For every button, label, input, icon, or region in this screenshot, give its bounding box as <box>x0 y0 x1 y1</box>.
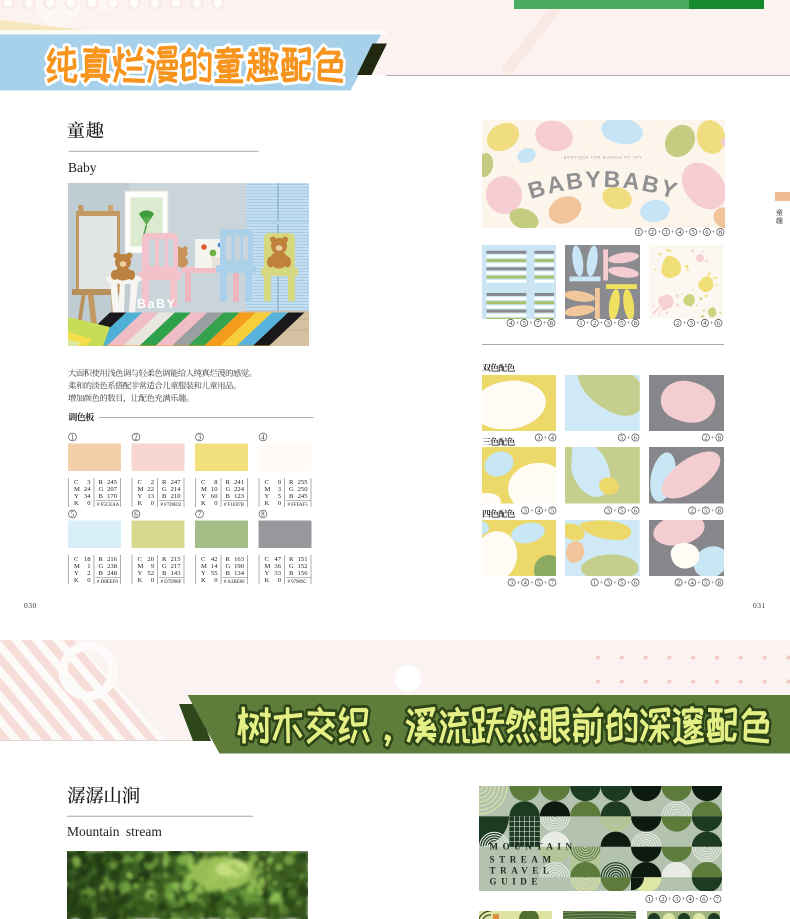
svg-text:6: 6 <box>134 511 138 518</box>
svg-text:R: R <box>226 556 231 563</box>
svg-text:+: + <box>685 229 689 236</box>
svg-text:247: 247 <box>171 479 182 486</box>
svg-text:Y: Y <box>265 570 270 577</box>
svg-text:Y: Y <box>138 570 143 577</box>
svg-text:2: 2 <box>661 896 664 903</box>
svg-text:R: R <box>99 556 104 563</box>
svg-text:G: G <box>226 486 231 493</box>
svg-text:# D7D98F: # D7D98F <box>161 580 182 585</box>
svg-text:52: 52 <box>147 570 154 577</box>
svg-text:+: + <box>627 435 631 442</box>
svg-text:B: B <box>226 570 231 577</box>
svg-text:248: 248 <box>107 570 118 577</box>
svg-text:8: 8 <box>634 320 637 327</box>
svg-text:# D8EEF8: # D8EEF8 <box>97 580 118 585</box>
svg-text:G: G <box>99 563 104 570</box>
svg-text:8: 8 <box>718 435 721 442</box>
svg-text:B: B <box>289 493 294 500</box>
svg-text:0: 0 <box>278 577 282 584</box>
svg-text:+: + <box>657 229 661 236</box>
svg-text:M: M <box>74 486 80 493</box>
svg-text:3: 3 <box>690 320 693 327</box>
svg-text:+: + <box>697 580 701 587</box>
svg-text:33: 33 <box>274 570 281 577</box>
svg-text:K: K <box>138 577 143 584</box>
svg-text:+: + <box>711 435 715 442</box>
svg-text:G: G <box>289 486 294 493</box>
svg-text:C: C <box>138 479 143 486</box>
svg-text:3: 3 <box>675 896 678 903</box>
svg-text:238: 238 <box>107 563 118 570</box>
svg-text:M: M <box>138 563 144 570</box>
svg-text:+: + <box>695 896 699 903</box>
svg-text:+: + <box>711 580 715 587</box>
svg-text:+: + <box>683 320 687 327</box>
svg-text:123: 123 <box>234 493 245 500</box>
svg-text:C: C <box>74 479 79 486</box>
svg-text:+: + <box>529 320 533 327</box>
svg-text:MOUNTAIN: MOUNTAIN <box>490 842 577 852</box>
svg-text:245: 245 <box>107 479 118 486</box>
svg-text:C: C <box>138 556 143 563</box>
svg-text:2: 2 <box>87 570 90 577</box>
svg-text:+: + <box>671 229 675 236</box>
svg-text:9: 9 <box>151 563 155 570</box>
svg-text:2: 2 <box>676 320 679 327</box>
svg-text:6: 6 <box>705 229 708 236</box>
svg-text:+: + <box>613 507 617 514</box>
svg-text:+: + <box>627 580 631 587</box>
svg-text:C: C <box>74 556 79 563</box>
svg-text:5: 5 <box>71 511 75 518</box>
svg-text:G: G <box>162 486 167 493</box>
svg-text:K: K <box>201 500 206 507</box>
svg-text:# F5CEAA: # F5CEAA <box>97 503 120 508</box>
svg-text:+: + <box>627 320 631 327</box>
svg-text:Y: Y <box>138 493 143 500</box>
svg-text:+: + <box>644 229 648 236</box>
svg-text:5: 5 <box>278 493 282 500</box>
svg-text:+: + <box>654 896 658 903</box>
svg-text:5: 5 <box>620 320 623 327</box>
svg-text:+: + <box>697 507 701 514</box>
svg-text:6: 6 <box>634 435 637 442</box>
svg-text:C: C <box>201 556 206 563</box>
svg-text:3: 3 <box>87 479 91 486</box>
svg-text:24: 24 <box>84 486 91 493</box>
svg-text:152: 152 <box>298 563 308 570</box>
svg-text:6: 6 <box>717 320 720 327</box>
svg-text:5: 5 <box>704 507 707 514</box>
svg-text:215: 215 <box>171 556 182 563</box>
svg-text:+: + <box>613 580 617 587</box>
svg-text:+: + <box>543 435 547 442</box>
svg-text:+: + <box>711 507 715 514</box>
svg-text:5: 5 <box>692 229 695 236</box>
svg-text:2: 2 <box>677 580 680 587</box>
svg-text:5: 5 <box>620 435 623 442</box>
svg-text:3: 3 <box>607 580 610 587</box>
svg-text:3: 3 <box>278 486 282 493</box>
svg-text:255: 255 <box>298 479 309 486</box>
svg-text:3: 3 <box>509 580 512 587</box>
svg-text:# F1E07B: # F1E07B <box>224 503 245 508</box>
svg-text:2: 2 <box>593 320 596 327</box>
svg-text:0: 0 <box>151 500 155 507</box>
svg-text:+: + <box>543 580 547 587</box>
svg-text:1: 1 <box>593 580 596 587</box>
svg-text:5: 5 <box>620 580 623 587</box>
svg-text:G: G <box>99 486 104 493</box>
svg-text:+: + <box>696 320 700 327</box>
svg-text:M: M <box>201 486 207 493</box>
svg-text:C: C <box>265 556 270 563</box>
svg-text:B: B <box>226 493 231 500</box>
svg-text:C: C <box>265 479 270 486</box>
svg-text:5: 5 <box>537 580 540 587</box>
svg-text:2: 2 <box>704 435 707 442</box>
svg-text:+: + <box>613 320 617 327</box>
svg-text:B: B <box>99 570 104 577</box>
svg-text:+: + <box>600 320 604 327</box>
svg-text:0: 0 <box>151 577 155 584</box>
svg-text:K: K <box>74 577 79 584</box>
svg-text:1: 1 <box>648 896 651 903</box>
svg-text:B: B <box>162 570 167 577</box>
svg-text:Mountain stream: Mountain stream <box>67 824 162 839</box>
svg-text:245: 245 <box>298 493 309 500</box>
svg-text:R: R <box>226 479 231 486</box>
svg-text:0: 0 <box>214 577 218 584</box>
svg-text:1: 1 <box>71 434 74 441</box>
svg-text:+: + <box>712 229 716 236</box>
svg-text:G: G <box>226 563 231 570</box>
svg-text:3: 3 <box>198 434 202 441</box>
svg-text:4: 4 <box>261 434 265 441</box>
svg-text:# A3BE86: # A3BE86 <box>224 580 245 585</box>
svg-text:+: + <box>543 507 547 514</box>
svg-text:0: 0 <box>278 479 282 486</box>
svg-text:3: 3 <box>607 507 610 514</box>
svg-text:190: 190 <box>234 563 245 570</box>
svg-text:8: 8 <box>214 479 218 486</box>
svg-text:5: 5 <box>704 580 707 587</box>
svg-text:+: + <box>586 320 590 327</box>
svg-text:GUIDE: GUIDE <box>490 877 543 887</box>
svg-text:0: 0 <box>87 577 91 584</box>
svg-text:8: 8 <box>718 507 721 514</box>
svg-text:8: 8 <box>549 320 552 327</box>
svg-text:M: M <box>265 563 271 570</box>
svg-text:+: + <box>515 320 519 327</box>
svg-text:13: 13 <box>147 493 154 500</box>
svg-text:5: 5 <box>620 507 623 514</box>
svg-text:TRAVEL: TRAVEL <box>490 866 554 876</box>
svg-text:5: 5 <box>550 507 553 514</box>
svg-text:217: 217 <box>171 563 182 570</box>
svg-text:M: M <box>138 486 144 493</box>
svg-text:14: 14 <box>211 563 218 570</box>
svg-text:Baby: Baby <box>68 160 97 175</box>
svg-text:# FFFAF5: # FFFAF5 <box>288 503 309 508</box>
svg-text:+: + <box>627 507 631 514</box>
svg-text:7: 7 <box>198 511 202 518</box>
svg-text:+: + <box>710 320 714 327</box>
svg-text:R: R <box>99 479 104 486</box>
svg-text:3: 3 <box>607 320 610 327</box>
svg-text:+: + <box>530 580 534 587</box>
svg-text:170: 170 <box>107 493 118 500</box>
svg-text:250: 250 <box>298 486 309 493</box>
svg-text:B: B <box>289 570 294 577</box>
svg-text:36: 36 <box>274 563 281 570</box>
svg-text:BOUTIQUE FOR BUNDLE OF JOY: BOUTIQUE FOR BUNDLE OF JOY <box>564 154 643 159</box>
svg-text:B: B <box>162 493 167 500</box>
svg-text:Y: Y <box>201 493 206 500</box>
svg-text:C: C <box>201 479 206 486</box>
svg-text:55: 55 <box>211 570 218 577</box>
svg-text:+: + <box>709 896 713 903</box>
svg-text:6: 6 <box>702 896 705 903</box>
svg-text:1: 1 <box>637 229 640 236</box>
svg-text:210: 210 <box>171 493 182 500</box>
svg-text:Y: Y <box>265 493 270 500</box>
svg-text:R: R <box>289 556 294 563</box>
svg-text:K: K <box>265 577 270 584</box>
svg-text:+: + <box>684 580 688 587</box>
svg-text:6: 6 <box>634 580 637 587</box>
svg-text:B: B <box>99 493 104 500</box>
svg-text:47: 47 <box>274 556 281 563</box>
svg-text:+: + <box>682 896 686 903</box>
svg-text:18: 18 <box>84 556 91 563</box>
svg-text:K: K <box>201 577 206 584</box>
svg-text:42: 42 <box>211 556 218 563</box>
svg-text:# F7D6D2: # F7D6D2 <box>161 503 182 508</box>
svg-text:M: M <box>74 563 80 570</box>
svg-text:156: 156 <box>298 570 309 577</box>
svg-text:8: 8 <box>718 580 721 587</box>
svg-text:3: 3 <box>664 229 667 236</box>
svg-text:K: K <box>265 500 270 507</box>
svg-text:+: + <box>516 580 520 587</box>
svg-text:STREAM: STREAM <box>490 855 556 865</box>
svg-text:G: G <box>289 563 294 570</box>
svg-text:5: 5 <box>522 320 525 327</box>
svg-text:0: 0 <box>87 500 91 507</box>
svg-text:Y: Y <box>74 570 79 577</box>
svg-text:20: 20 <box>147 556 154 563</box>
svg-text:6: 6 <box>634 507 637 514</box>
svg-text:Y: Y <box>74 493 79 500</box>
svg-text:216: 216 <box>107 556 118 563</box>
svg-text:0: 0 <box>278 500 282 507</box>
svg-text:163: 163 <box>234 556 245 563</box>
svg-text:2: 2 <box>651 229 654 236</box>
svg-text:207: 207 <box>107 486 118 493</box>
svg-text:R: R <box>289 479 294 486</box>
svg-text:34: 34 <box>84 493 91 500</box>
svg-text:60: 60 <box>211 493 218 500</box>
svg-text:BaBY: BaBY <box>137 297 176 311</box>
svg-text:214: 214 <box>171 486 182 493</box>
svg-text:224: 224 <box>234 486 245 493</box>
svg-text:8: 8 <box>719 229 722 236</box>
svg-text:G: G <box>162 563 167 570</box>
svg-text:1: 1 <box>87 563 90 570</box>
svg-text:+: + <box>668 896 672 903</box>
svg-text:10: 10 <box>211 486 218 493</box>
svg-text:+: + <box>542 320 546 327</box>
svg-text:+: + <box>698 229 702 236</box>
svg-text:+: + <box>600 580 604 587</box>
svg-text:134: 134 <box>234 570 245 577</box>
svg-text:1: 1 <box>579 320 582 327</box>
svg-text:0: 0 <box>214 500 218 507</box>
svg-text:143: 143 <box>171 570 182 577</box>
svg-text:R: R <box>162 556 167 563</box>
svg-text:# 97989C: # 97989C <box>288 580 307 585</box>
svg-text:Y: Y <box>201 570 206 577</box>
svg-text:M: M <box>201 563 207 570</box>
svg-text:R: R <box>162 479 167 486</box>
svg-text:K: K <box>74 500 79 507</box>
svg-text:8: 8 <box>261 511 265 518</box>
svg-text:M: M <box>265 486 271 493</box>
svg-text:22: 22 <box>147 486 154 493</box>
svg-text:241: 241 <box>234 479 244 486</box>
svg-text:K: K <box>138 500 143 507</box>
svg-text:2: 2 <box>134 434 138 441</box>
svg-text:151: 151 <box>298 556 308 563</box>
svg-text:2: 2 <box>691 507 694 514</box>
svg-text:2: 2 <box>151 479 154 486</box>
